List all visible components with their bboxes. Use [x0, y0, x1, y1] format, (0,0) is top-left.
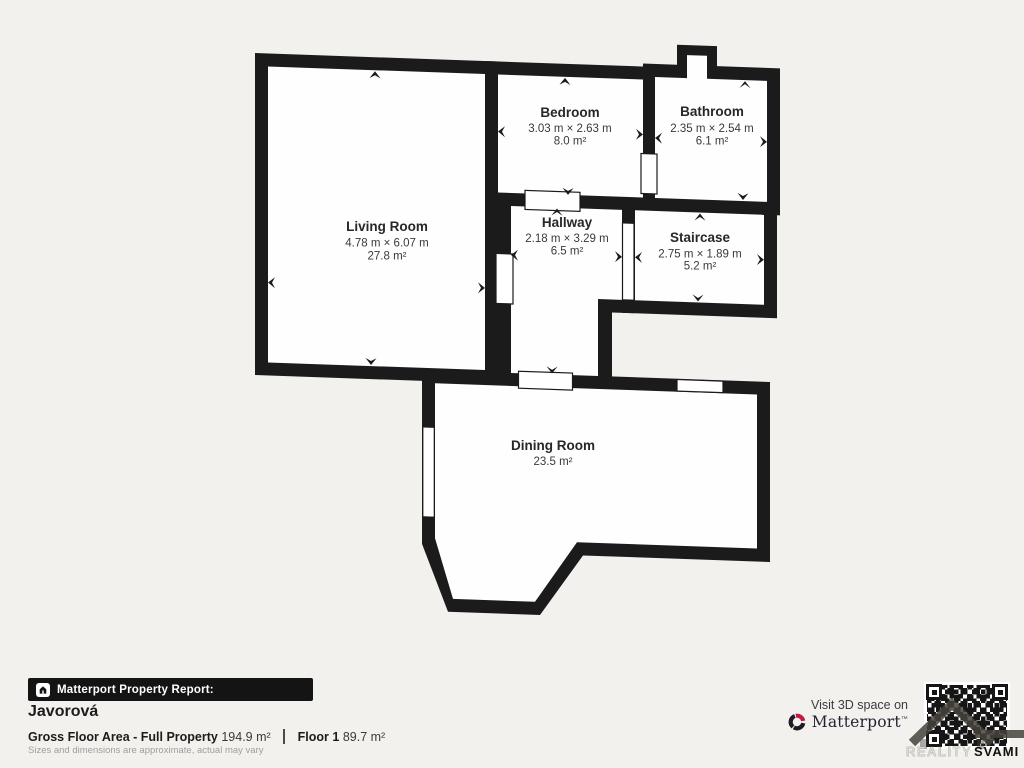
room-dimensions: 2.18 m × 3.29 m: [525, 233, 608, 245]
disclaimer-text: Sizes and dimensions are approximate, ac…: [28, 745, 264, 756]
report-badge-label: Matterport Property Report:: [57, 684, 214, 696]
room-dimensions: 3.03 m × 2.63 m: [528, 123, 611, 135]
report-badge-bar: Matterport Property Report:: [28, 678, 313, 701]
door-living-hallway: [496, 253, 513, 304]
window-dining-left: [423, 427, 435, 517]
opening-hallway-staircase: [623, 223, 635, 300]
room-name: Staircase: [670, 230, 731, 245]
door-hallway-dining: [519, 371, 573, 390]
door-bedroom-hallway: [525, 190, 580, 211]
door-bedroom-bathroom: [641, 153, 657, 194]
room-area: 6.1 m²: [696, 136, 729, 148]
room-name: Hallway: [542, 215, 593, 230]
room-dimensions: 2.35 m × 2.54 m: [670, 123, 753, 135]
room-name: Bedroom: [540, 105, 599, 120]
divider: [283, 729, 285, 744]
floor-plan: Living Room 4.78 m × 6.07 m 27.8 m² Bedr…: [0, 0, 1024, 672]
window-dining-top: [677, 380, 723, 393]
room-area: 6.5 m²: [551, 246, 584, 258]
property-report-image: Living Room 4.78 m × 6.07 m 27.8 m² Bedr…: [0, 0, 1024, 768]
room-area: 23.5 m²: [534, 456, 573, 468]
dining-room-floor: [435, 383, 757, 609]
floor-label: Floor 1: [298, 730, 340, 744]
house-roof-icon: [912, 704, 1024, 749]
room-area: 5.2 m²: [684, 261, 717, 273]
watermark-reality-text: REALITY: [906, 744, 972, 759]
gross-floor-area-value: 194.9 m²: [221, 730, 270, 744]
building-icon: [36, 683, 50, 697]
floor-area-value: 89.7 m²: [343, 730, 385, 744]
area-summary-line: Gross Floor Area - Full Property 194.9 m…: [28, 726, 385, 744]
floor-plan-geometry: [255, 30, 780, 623]
matterport-wordmark: Matterport™: [812, 713, 908, 731]
matterport-brand-row: Matterport™: [740, 712, 908, 732]
watermark-svami-text: SVAMI: [974, 744, 1019, 759]
room-name: Bathroom: [680, 104, 744, 119]
reality-svami-watermark: REALITY SVAMI: [898, 694, 1024, 764]
gross-floor-area-label: Gross Floor Area - Full Property: [28, 730, 218, 744]
room-dimensions: 4.78 m × 6.07 m: [345, 238, 428, 250]
room-name: Living Room: [346, 219, 428, 234]
matterport-logo-icon: [787, 712, 807, 732]
room-name: Dining Room: [511, 438, 595, 453]
room-dimensions: 2.75 m × 1.89 m: [658, 249, 741, 261]
property-name: Javorová: [28, 703, 98, 721]
room-area: 27.8 m²: [368, 251, 407, 263]
visit-3d-space-text: Visit 3D space on: [740, 698, 908, 712]
room-area: 8.0 m²: [554, 136, 587, 148]
